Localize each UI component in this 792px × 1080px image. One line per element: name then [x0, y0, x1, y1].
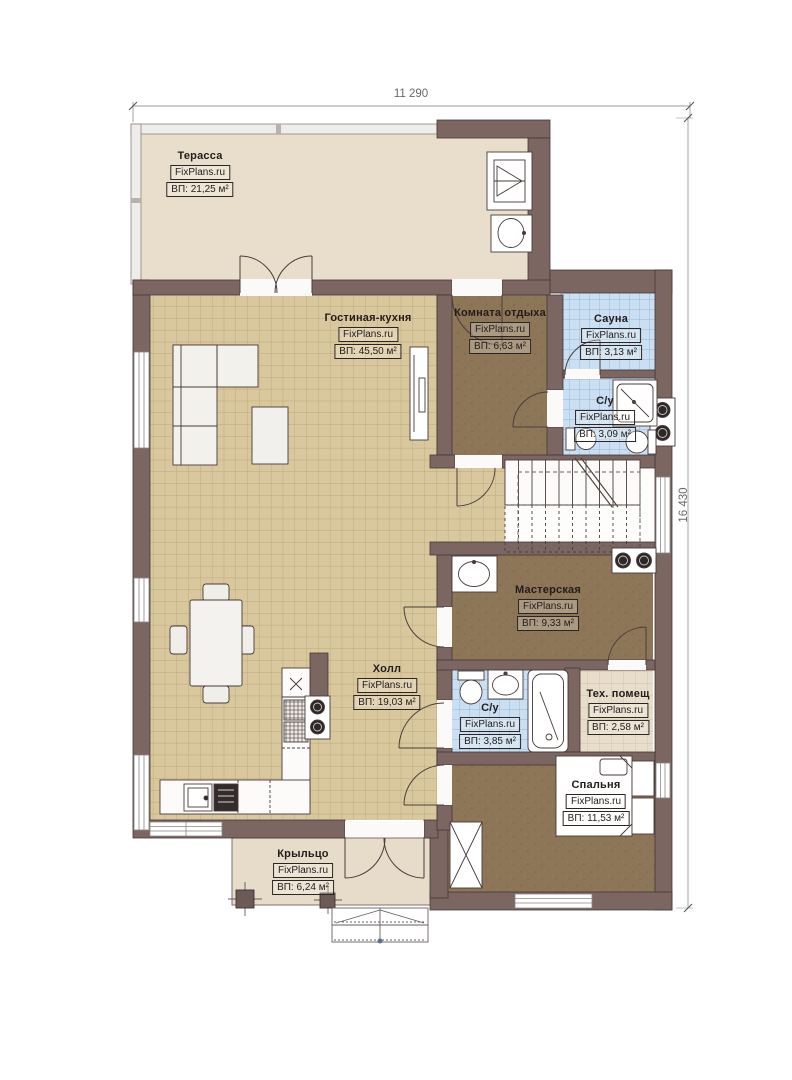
window-left-2 [134, 578, 149, 622]
room-area: ВП: 45,50 м² [334, 344, 401, 359]
watermark: FixPlans.ru [357, 678, 417, 693]
room-area: ВП: 3,09 м² [574, 427, 636, 442]
workshop-sink [452, 556, 497, 592]
corridor-floor [437, 455, 507, 555]
window-right-2 [656, 763, 670, 798]
window-left-3 [134, 755, 149, 830]
stove [305, 696, 330, 739]
room-label-terrace: Терасса FixPlans.ru ВП: 21,25 м² [166, 150, 233, 197]
dimension-width: 11 290 [394, 88, 428, 100]
wc-bottom-sink [488, 670, 523, 699]
nightstand-2 [632, 798, 654, 834]
window-bottom-left [150, 822, 222, 836]
tv-unit [410, 347, 428, 440]
workshop-appliance [612, 548, 656, 573]
room-area: ВП: 21,25 м² [166, 182, 233, 197]
wc-bottom-toilet [458, 671, 484, 704]
room-label-tech: Тех. помещ FixPlans.ru ВП: 2,58 м² [586, 688, 649, 735]
coffee-table [252, 407, 288, 464]
grill [487, 152, 532, 210]
room-area: ВП: 6,63 м² [469, 339, 531, 354]
room-label-hall: Холл FixPlans.ru ВП: 19,03 м² [353, 663, 420, 710]
room-label-wc-bottom: С/у FixPlans.ru ВП: 3,85 м² [459, 702, 521, 749]
room-label-bedroom: Спальня FixPlans.ru ВП: 11,53 м² [563, 779, 630, 826]
watermark: FixPlans.ru [588, 703, 648, 718]
wardrobe [450, 822, 482, 888]
room-name: Тех. помещ [586, 688, 649, 701]
watermark: FixPlans.ru [273, 863, 333, 878]
watermark: FixPlans.ru [566, 794, 626, 809]
watermark: FixPlans.ru [338, 327, 398, 342]
room-name: Гостиная-кухня [324, 312, 411, 325]
nightstand-1 [632, 761, 654, 796]
room-label-living: Гостиная-кухня FixPlans.ru ВП: 45,50 м² [324, 312, 411, 359]
watermark: FixPlans.ru [170, 165, 230, 180]
kitchen-counter-bottom [160, 780, 310, 814]
watermark: FixPlans.ru [575, 410, 635, 425]
watermark: FixPlans.ru [581, 328, 641, 343]
floor-plan: 11 290 16 430 Терасса FixPlans.ru ВП: 21… [0, 0, 792, 1080]
window-right-1 [656, 477, 670, 553]
room-label-workshop: Мастерская FixPlans.ru ВП: 9,33 м² [515, 584, 581, 631]
room-area: ВП: 6,24 м² [272, 880, 334, 895]
watermark: FixPlans.ru [460, 717, 520, 732]
room-label-sauna: Сауна FixPlans.ru ВП: 3,13 м² [580, 313, 642, 360]
room-label-lounge: Комната отдыха FixPlans.ru ВП: 6,63 м² [454, 307, 546, 354]
room-name: С/у [596, 395, 614, 408]
room-label-porch: Крыльцо FixPlans.ru ВП: 6,24 м² [272, 848, 334, 895]
room-name: Крыльцо [277, 848, 328, 861]
porch-floor [232, 838, 445, 905]
window-bottom-bedroom [515, 894, 592, 908]
room-name: Комната отдыха [454, 307, 546, 320]
room-area: ВП: 3,13 м² [580, 345, 642, 360]
room-label-wc-top: С/у FixPlans.ru ВП: 3,09 м² [574, 395, 636, 442]
room-name: Терасса [177, 150, 222, 163]
room-area: ВП: 3,85 м² [459, 734, 521, 749]
room-area: ВП: 11,53 м² [563, 811, 630, 826]
entrance-steps [332, 908, 428, 944]
room-name: Сауна [594, 313, 628, 326]
room-name: Мастерская [515, 584, 581, 597]
watermark: FixPlans.ru [470, 322, 530, 337]
watermark: FixPlans.ru [518, 599, 578, 614]
room-name: Спальня [572, 779, 621, 792]
room-name: С/у [481, 702, 499, 715]
floor-plan-drawing [0, 0, 792, 1080]
room-area: ВП: 19,03 м² [353, 695, 420, 710]
window-left-1 [134, 352, 149, 448]
bathtub [528, 670, 568, 752]
room-name: Холл [373, 663, 401, 676]
room-area: ВП: 9,33 м² [517, 616, 579, 631]
terrace-sink [491, 215, 532, 252]
dimension-height: 16 430 [678, 487, 690, 522]
room-area: ВП: 2,58 м² [587, 720, 649, 735]
